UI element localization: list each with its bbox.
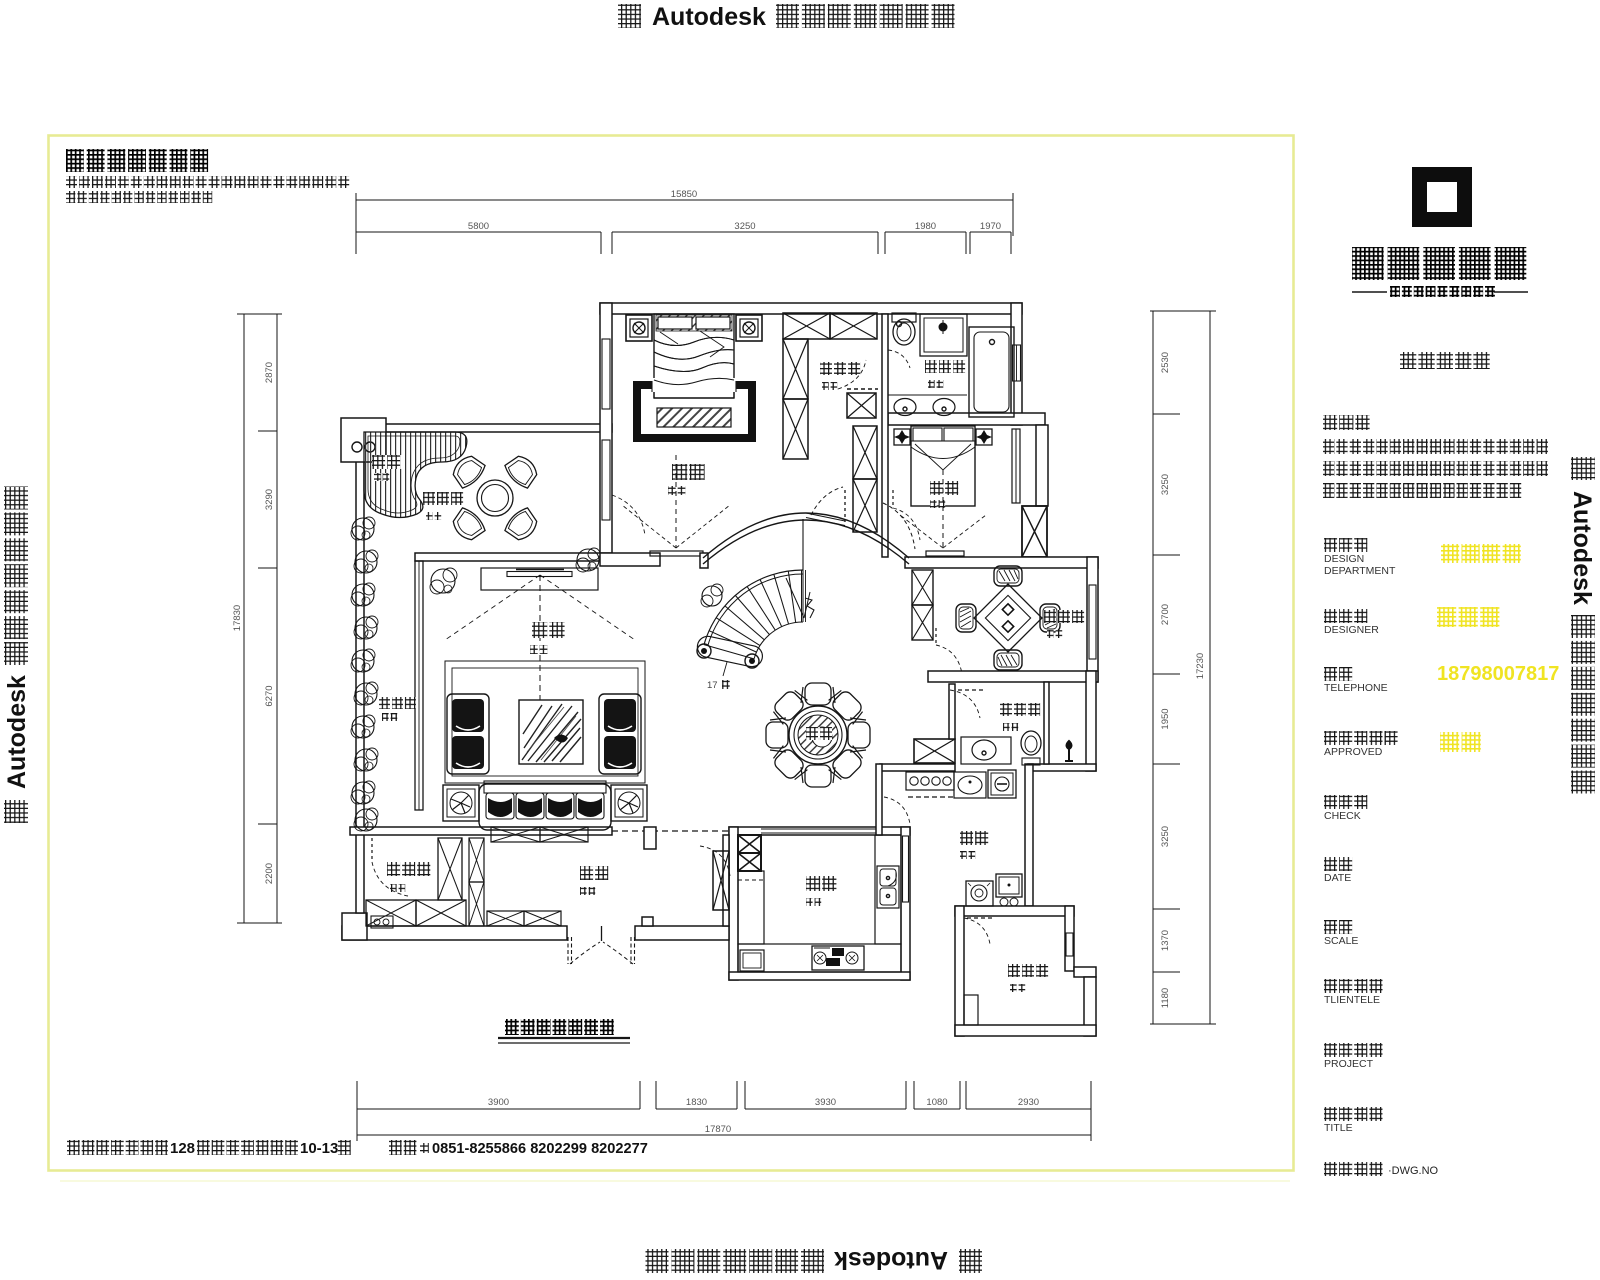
svg-text:2930: 2930 [1018, 1097, 1039, 1108]
svg-text:128: 128 [170, 1140, 195, 1157]
svg-text:Autodesk: Autodesk [3, 675, 31, 789]
svg-text:15850: 15850 [671, 189, 697, 200]
svg-text:1970: 1970 [980, 221, 1001, 232]
svg-text:1830: 1830 [686, 1097, 707, 1108]
svg-text:3900: 3900 [488, 1097, 509, 1108]
svg-text:2200: 2200 [264, 863, 275, 884]
svg-text:10-13: 10-13 [300, 1140, 338, 1157]
svg-text:PROJECT: PROJECT [1324, 1058, 1374, 1070]
svg-text:TLIENTELE: TLIENTELE [1324, 994, 1380, 1006]
svg-text:1180: 1180 [1160, 988, 1171, 1008]
svg-text:1950: 1950 [1160, 708, 1171, 729]
svg-text:3250: 3250 [1160, 474, 1171, 495]
svg-text:17870: 17870 [705, 1124, 731, 1135]
svg-text:3250: 3250 [1160, 826, 1171, 847]
svg-text:2700: 2700 [1160, 604, 1171, 625]
svg-text:SCALE: SCALE [1324, 935, 1358, 947]
svg-text:TITLE: TITLE [1324, 1122, 1353, 1134]
svg-text:17230: 17230 [1195, 653, 1206, 679]
svg-text:DATE: DATE [1324, 872, 1351, 884]
svg-text:6270: 6270 [264, 685, 275, 706]
svg-text:5800: 5800 [468, 221, 489, 232]
svg-text:17830: 17830 [232, 605, 243, 631]
svg-text:Autodesk: Autodesk [1568, 491, 1596, 605]
svg-text:APPROVED: APPROVED [1324, 746, 1383, 758]
svg-text:1370: 1370 [1160, 930, 1171, 951]
svg-text:2870: 2870 [264, 362, 275, 383]
svg-text:DEPARTMENT: DEPARTMENT [1324, 565, 1396, 577]
svg-text:1080: 1080 [926, 1097, 947, 1108]
svg-text:18798007817: 18798007817 [1437, 663, 1559, 685]
svg-text:CHECK: CHECK [1324, 810, 1361, 822]
svg-text:3250: 3250 [734, 221, 755, 232]
svg-text:Autodesk: Autodesk [834, 1246, 948, 1274]
svg-text:·DWG.NO: ·DWG.NO [1388, 1165, 1439, 1177]
svg-text:DESIGN: DESIGN [1324, 553, 1364, 565]
svg-text:TELEPHONE: TELEPHONE [1324, 682, 1388, 694]
svg-text:17: 17 [707, 680, 718, 691]
svg-text:2530: 2530 [1160, 352, 1171, 373]
svg-text:DESIGNER: DESIGNER [1324, 624, 1379, 636]
svg-text:0851-8255866 8202299 8202277: 0851-8255866 8202299 8202277 [432, 1141, 648, 1157]
svg-text:3290: 3290 [264, 489, 275, 510]
svg-text:3930: 3930 [815, 1097, 836, 1108]
svg-text:1980: 1980 [915, 221, 936, 232]
svg-text:Autodesk: Autodesk [652, 3, 766, 31]
